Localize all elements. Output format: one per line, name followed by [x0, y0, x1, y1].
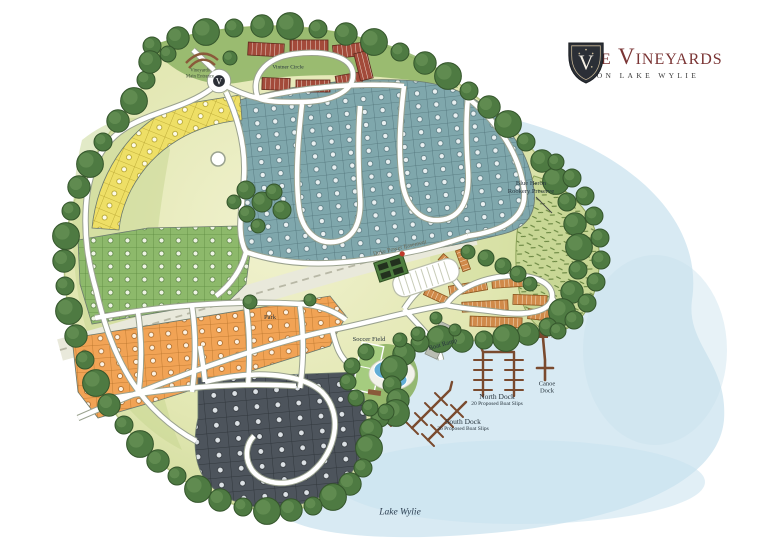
- brand-logo: V The Vineyards On Lake Wylie: [566, 42, 730, 80]
- logo-subtitle: On Lake Wylie: [597, 71, 699, 80]
- preserve-line2: Rookery Preserve: [508, 188, 554, 195]
- shield-v-icon: V: [566, 42, 606, 84]
- label-blue-heron-preserve: Blue Heron Rookery Preserve: [508, 180, 554, 196]
- entrance-monument-letter: V: [216, 77, 223, 87]
- site-plan-art: V: [0, 0, 768, 548]
- south-dock-name: South Dock: [445, 417, 481, 426]
- entrance-line2: Main Entrance: [186, 74, 214, 79]
- label-north-dock: North Dock 20 Proposed Boat Slips: [471, 392, 523, 408]
- label-south-dock: South Dock 26 Proposed Boat Slips: [437, 417, 489, 433]
- entrance-line1: Vineyards: [190, 68, 209, 73]
- shield-monogram: V: [578, 51, 593, 75]
- preserve-line1: Blue Heron: [516, 180, 546, 187]
- label-vintner-circle: Vintner Circle: [272, 65, 303, 72]
- site-map: V Vintner Circle Duke Power Easement Par…: [0, 0, 768, 548]
- north-dock-name: North Dock: [479, 392, 515, 401]
- label-park: Park: [264, 314, 276, 322]
- label-soccer-field: Soccer Field: [353, 336, 386, 344]
- label-canoe-dock: Canoe Dock: [531, 381, 563, 396]
- north-dock-note: 20 Proposed Boat Slips: [471, 401, 523, 408]
- label-main-entrance: Vineyards Main Entrance: [186, 68, 214, 80]
- south-dock-note: 26 Proposed Boat Slips: [437, 426, 489, 433]
- label-lake-wylie: Lake Wylie: [379, 507, 421, 518]
